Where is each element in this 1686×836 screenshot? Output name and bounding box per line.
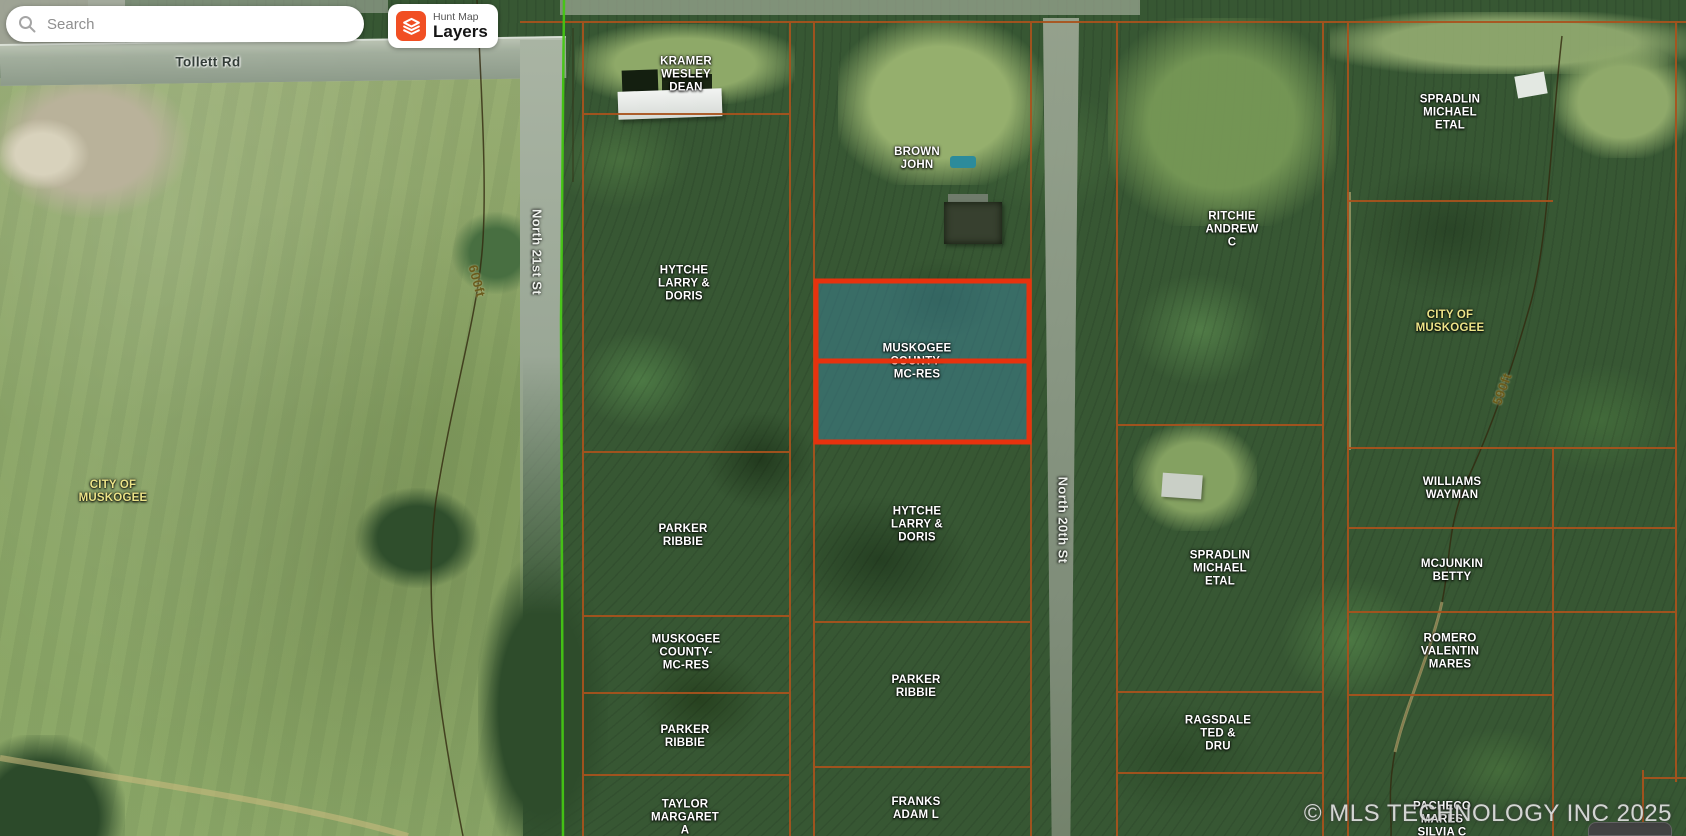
layers-icon xyxy=(396,11,426,41)
trails xyxy=(0,192,1442,836)
highlighted-parcel-fill xyxy=(816,281,1029,442)
attribution-watermark: © MLS TECHNOLOGY INC 2025 xyxy=(1304,800,1672,828)
search-icon xyxy=(18,15,36,33)
search-input[interactable] xyxy=(45,15,352,34)
search-bar[interactable] xyxy=(6,6,364,42)
layers-button[interactable]: Hunt Map Layers xyxy=(388,4,498,48)
layers-button-text: Hunt Map Layers xyxy=(433,12,488,41)
layers-label: Layers xyxy=(433,23,488,41)
parcel-lines-overlay xyxy=(0,0,1686,836)
section-line-green xyxy=(561,0,564,836)
map-viewport[interactable]: KRAMERWESLEYDEANBROWNJOHNHYTCHELARRY &DO… xyxy=(0,0,1686,836)
parcel-boundary-lines xyxy=(520,22,1686,836)
layers-eyebrow: Hunt Map xyxy=(433,12,488,23)
